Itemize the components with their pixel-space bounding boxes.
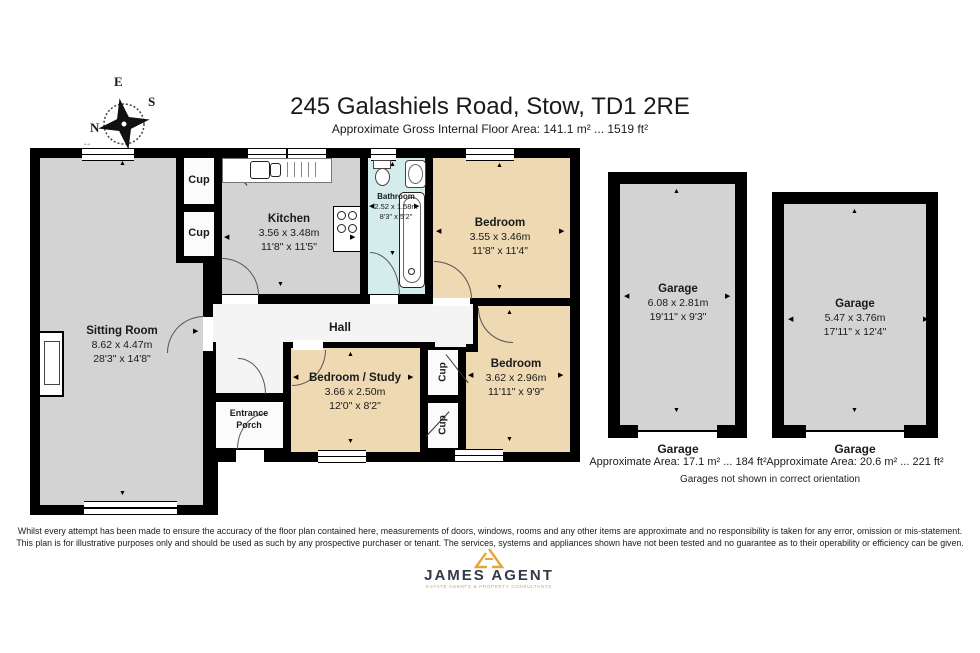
drainer-line: [315, 162, 316, 177]
measure-arrow-up-icon: [673, 188, 680, 195]
window-divider: [286, 149, 288, 158]
hob-ring: [337, 211, 346, 220]
door-gap: [293, 340, 323, 350]
measure-arrow-right-icon: [923, 316, 928, 323]
room-dim-imperial: 11'8" x 11'4": [470, 244, 531, 258]
measure-arrow-down-icon: [119, 490, 126, 497]
drainer-line: [308, 162, 309, 177]
room-dim-metric: 3.62 x 2.96m: [486, 372, 547, 386]
cupboard-label: Cup: [438, 415, 449, 434]
hob-ring: [337, 224, 346, 233]
room-dim-imperial: 19'11" x 9'3": [648, 310, 709, 324]
measure-arrow-down-icon: [347, 438, 354, 445]
measure-arrow-right-icon: [558, 372, 563, 379]
measure-arrow-up-icon: [851, 208, 858, 215]
garage-wall: [772, 425, 806, 438]
room-dim-imperial: 11'11" x 9'9": [486, 385, 547, 399]
window: [84, 501, 177, 515]
measure-arrow-right-icon: [408, 374, 413, 381]
room-dim-imperial: 17'11" x 12'4": [824, 325, 887, 339]
toilet-bowl: [375, 168, 390, 186]
measure-arrow-up-icon: [347, 351, 354, 358]
room-dim-metric: 6.08 x 2.81m: [648, 297, 709, 311]
measure-arrow-down-icon: [496, 284, 503, 291]
sitting-room-label: Sitting Room 8.62 x 4.47m 28'3" x 14'8": [86, 324, 158, 366]
bathroom-basin-bowl: [408, 164, 423, 184]
hall-floor: [213, 304, 435, 342]
room-dim-metric: 8.62 x 4.47m: [86, 339, 158, 353]
room-dim-metric: 3.55 x 3.46m: [470, 231, 531, 245]
measure-arrow-left-icon: [293, 374, 298, 381]
measure-arrow-down-icon: [673, 407, 680, 414]
disclaimer-line-1: Whilst every attempt has been made to en…: [0, 526, 980, 536]
bedroom-right-label: Bedroom 3.62 x 2.96m 11'11" x 9'9": [486, 357, 547, 399]
drainer-line: [294, 162, 295, 177]
measure-arrow-up-icon: [506, 309, 513, 316]
garage-door-line: [806, 430, 904, 432]
hall-label: Hall: [329, 320, 351, 334]
kitchen-sink-half-bowl: [270, 163, 281, 177]
wall: [261, 393, 283, 402]
room-dim-imperial: 28'3" x 14'8": [86, 352, 158, 366]
measure-arrow-left-icon: [436, 228, 441, 235]
garage-wall: [904, 425, 938, 438]
hall-notch-floor: [435, 304, 473, 347]
cupboard-label: Cup: [438, 362, 449, 381]
bedroom-study-label: Bedroom / Study 3.66 x 2.50m 12'0" x 8'2…: [309, 371, 401, 413]
measure-arrow-down-icon: [506, 436, 513, 443]
compass-north-label: N: [90, 120, 99, 136]
room-name: Garage: [824, 297, 887, 312]
bedroom-top-label: Bedroom 3.55 x 3.46m 11'8" x 11'4": [470, 216, 531, 258]
entrance-porch-label: Entrance Porch: [230, 407, 269, 431]
measure-arrow-left-icon: [468, 372, 473, 379]
wall: [466, 344, 478, 352]
room-name: Bedroom / Study: [309, 371, 401, 386]
room-dim-metric: 3.66 x 2.50m: [309, 386, 401, 400]
compass-south-label: S: [148, 94, 155, 110]
room-dim-imperial: 12'0" x 8'2": [309, 399, 401, 413]
kitchen-label: Kitchen 3.56 x 3.48m 11'8" x 11'5": [259, 212, 320, 254]
room-dim-imperial: 8'3" x 5'2": [374, 212, 417, 222]
room-name: Bedroom: [486, 357, 547, 372]
floorplan-page: 245 Galashiels Road, Stow, TD1 2RE Appro…: [0, 0, 980, 653]
measure-arrow-right-icon: [725, 293, 730, 300]
garage-caption-title: Garage: [766, 442, 943, 456]
measure-arrow-right-icon: [193, 328, 198, 335]
measure-arrow-left-icon: [624, 293, 629, 300]
measure-arrow-down-icon: [277, 281, 284, 288]
garage-wall: [608, 425, 638, 438]
fireplace-inner: [44, 341, 60, 385]
measure-arrow-down-icon: [389, 250, 396, 257]
porch-line1: Entrance: [230, 407, 269, 419]
room-dim-metric: 2.52 x 1.58m: [374, 202, 417, 212]
garage-wall: [717, 425, 747, 438]
door-gap: [433, 298, 470, 306]
window: [455, 449, 503, 462]
measure-arrow-up-icon: [119, 160, 126, 167]
agency-logo-icon: [474, 547, 504, 569]
sitting-room-floor: [40, 263, 203, 505]
garage-orientation-note: Garages not shown in correct orientation: [680, 474, 860, 485]
wall: [216, 393, 238, 402]
garage-caption-area: Approximate Area: 20.6 m² ... 221 ft²: [766, 456, 943, 468]
measure-arrow-right-icon: [350, 234, 355, 241]
window: [318, 450, 366, 463]
garage-1-label: Garage 6.08 x 2.81m 19'11" x 9'3": [648, 282, 709, 324]
kitchen-sink-bowl: [250, 161, 270, 179]
garage-caption-title: Garage: [589, 442, 766, 456]
hob-ring: [348, 224, 357, 233]
garage-door-line: [638, 430, 717, 432]
door-gap: [222, 295, 258, 304]
door-gap: [203, 317, 213, 351]
bathroom-label: Bathroom 2.52 x 1.58m 8'3" x 5'2": [374, 192, 417, 222]
hob-ring: [348, 211, 357, 220]
drainer-line: [301, 162, 302, 177]
window: [82, 148, 134, 161]
measure-arrow-down-icon: [851, 407, 858, 414]
room-dim-metric: 3.56 x 3.48m: [259, 227, 320, 241]
room-dim-metric: 5.47 x 3.76m: [824, 312, 887, 326]
cupboard-label: Cup: [188, 227, 209, 239]
agency-tagline: ESTATE AGENTS & PROPERTY CONSULTANTS: [426, 584, 552, 589]
cupboard-label: Cup: [188, 174, 209, 186]
room-name: Bedroom: [470, 216, 531, 231]
room-name: Kitchen: [259, 212, 320, 227]
front-door-gap: [236, 450, 264, 462]
measure-arrow-up-icon: [496, 162, 503, 169]
measure-arrow-left-icon: [224, 234, 229, 241]
room-name: Sitting Room: [86, 324, 158, 339]
garage-caption-area: Approximate Area: 17.1 m² ... 184 ft²: [589, 456, 766, 468]
drainer-line: [287, 162, 288, 177]
window: [466, 148, 514, 161]
room-name: Garage: [648, 282, 709, 297]
agency-name: JAMES AGENT: [424, 567, 554, 584]
bathtub-drain: [408, 268, 415, 275]
compass-east-label: E: [114, 74, 123, 90]
room-name: Bathroom: [374, 192, 417, 202]
measure-arrow-left-icon: [788, 316, 793, 323]
garage-2-label: Garage 5.47 x 3.76m 17'11" x 12'4": [824, 297, 887, 339]
door-gap: [370, 295, 398, 304]
measure-arrow-right-icon: [559, 228, 564, 235]
porch-line2: Porch: [230, 419, 269, 431]
garage-1-caption: Garage Approximate Area: 17.1 m² ... 184…: [589, 442, 766, 468]
sitting-room-floor: [40, 158, 176, 263]
room-dim-imperial: 11'8" x 11'5": [259, 240, 320, 254]
measure-arrow-up-icon: [389, 161, 396, 168]
garage-2-caption: Garage Approximate Area: 20.6 m² ... 221…: [766, 442, 943, 468]
